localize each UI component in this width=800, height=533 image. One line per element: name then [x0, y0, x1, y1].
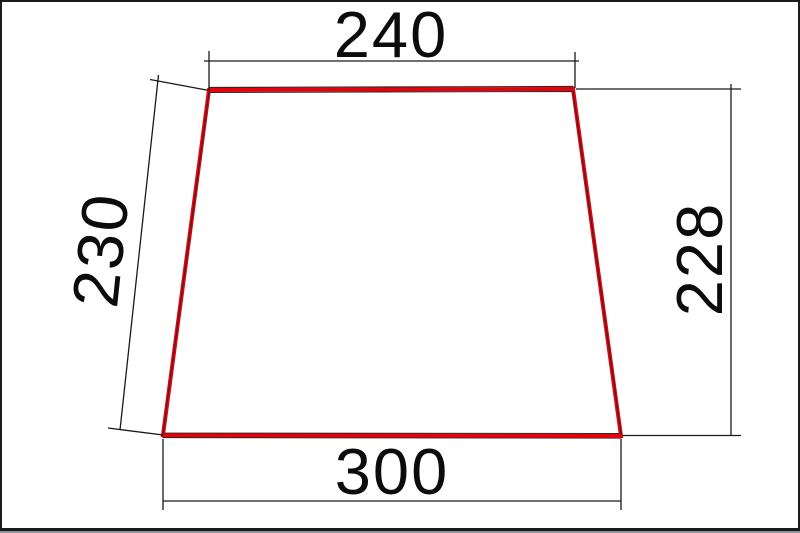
dim-ext-left-bottom	[108, 428, 163, 435]
dim-label-left-side: 230	[58, 189, 143, 310]
drawing-canvas: 240 230 228 300	[0, 0, 800, 533]
dim-label-right-side-group: 228	[663, 202, 736, 316]
glass-outline-outer-edge	[163, 87, 621, 439]
dim-ext-left-top	[150, 80, 209, 91]
glass-dimension-drawing: 240 230 228 300	[0, 0, 800, 533]
glass-outline-inner-edge	[163, 92, 621, 434]
dim-label-top-width: 240	[334, 0, 448, 71]
dim-label-right-side: 228	[663, 202, 736, 316]
dim-label-bottom-width: 300	[335, 435, 449, 508]
glass-outline	[163, 89, 621, 436]
dim-label-left-side-group: 230	[58, 189, 143, 310]
